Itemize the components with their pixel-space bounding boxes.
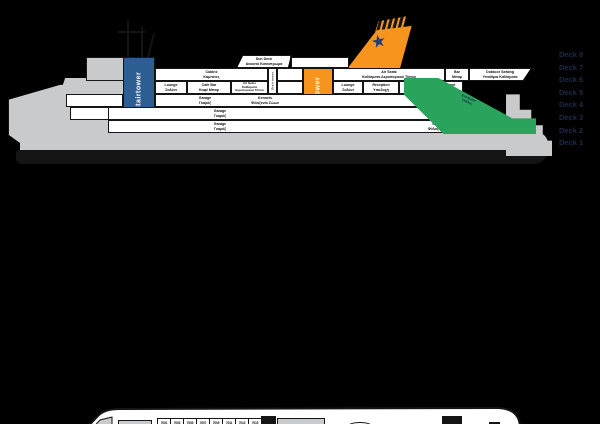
deck7-filler [277, 68, 303, 81]
deck7-plan: 700170037005700770097011701370157017 701… [0, 200, 600, 312]
ship-profile: ★ Stairtower Stairtower Sun Deck Ανοικτό… [0, 0, 600, 180]
sun-deck: Sun Deck Ανοικτό Κατάστρωμα [237, 55, 291, 68]
funnel-star-icon: ★ [369, 32, 387, 52]
mast-icon [127, 20, 129, 58]
deck-number-label: Deck 8 [559, 50, 597, 63]
profile-cafe-bar: Cafe Bar Καφέ Μπαρ [187, 81, 231, 94]
deck-number-label: Deck 2 [559, 126, 597, 139]
deck-number-label: Deck 4 [559, 100, 597, 113]
profile-reception: Reception Υποδοχή [363, 81, 399, 94]
deck6-plan: Outdoor Deck Υπαίθριο Κατάστρωμα A' Clas… [0, 308, 600, 424]
profile-garage-deck4: Garage Γκαράζ [195, 107, 245, 120]
profile-kennels: Kennels Φιλοξενία Ζώων [235, 94, 295, 107]
deck-number-label: Deck 7 [559, 63, 597, 76]
deck4-row [108, 107, 438, 120]
stairtower-small: Stairtower [268, 68, 277, 94]
deck-number-label: Deck 3 [559, 113, 597, 126]
profile-cabins: Cabins Καμπίνες [155, 68, 268, 81]
profile-garage-deck3: Garage Γκαράζ [195, 120, 245, 133]
profile-lounge-right: Lounge Σαλόνι [333, 81, 363, 94]
deck-number-label: Deck 5 [559, 88, 597, 101]
deck-number-label: Deck 1 [559, 138, 597, 151]
profile-garage-deck5: Garage Γκαράζ [185, 94, 225, 107]
hull-bottom [16, 150, 548, 164]
deck6-filler [277, 81, 303, 94]
mast-icon [147, 33, 155, 58]
mast-icon [117, 31, 145, 33]
profile-air-seats-left: Air Seats Καθίσματα Αεροπορικού Τύπου [231, 81, 268, 94]
bridge-block [86, 57, 124, 81]
profile-deck-numbers: Deck 8Deck 7Deck 6Deck 5Deck 4Deck 3Deck… [559, 50, 597, 152]
deck-number-label: Deck 6 [559, 75, 597, 88]
ferry-deck-plan: ★ Stairtower Stairtower Sun Deck Ανοικτό… [0, 0, 600, 424]
sun-deck-strip [291, 57, 349, 68]
profile-bar: Bar Μπαρ [445, 68, 469, 81]
profile-outdoor-seating: Outdoor Seating Υπαίθρια Καθίσματα [469, 68, 531, 81]
fore-deck-strip [66, 94, 123, 107]
profile-lounge-left: Lounge Σαλόνι [155, 81, 187, 94]
